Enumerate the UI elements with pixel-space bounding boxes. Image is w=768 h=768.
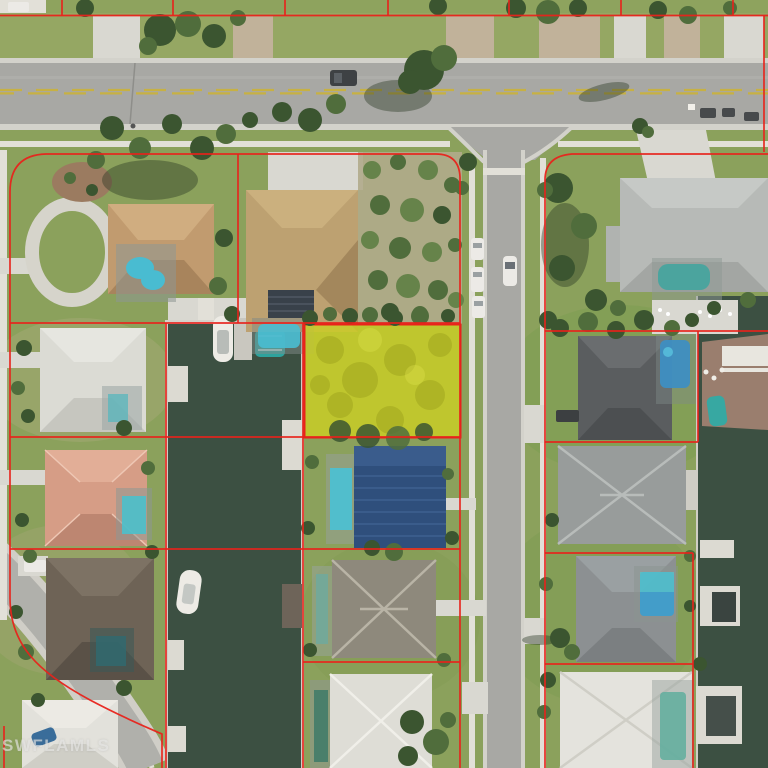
dock-west-3 [168, 726, 186, 752]
moving-car-street [503, 256, 517, 286]
dock-east-canal-3 [696, 686, 742, 744]
canal-west [165, 298, 304, 768]
house-white-roof-west [40, 328, 146, 432]
dock-west-1 [168, 366, 188, 402]
parked-cars-street [471, 238, 485, 318]
aerial-map: SWFLAMLS [0, 0, 768, 768]
house-gray-brown-roof [312, 560, 436, 658]
subject-parcel-highlight [305, 325, 461, 438]
house-gray-x-ridge [558, 446, 698, 544]
aerial-photo [0, 0, 768, 768]
house-blue-metal-roof [326, 446, 446, 548]
house-corner-white-roof [22, 700, 118, 768]
watermark: SWFLAMLS [2, 736, 110, 756]
dock-east-2 [282, 584, 302, 628]
dock-east-1 [282, 420, 302, 470]
house-gray-covered-pool [576, 556, 678, 662]
dock-east-canal-2 [700, 586, 740, 626]
dock-east-canal-1 [700, 540, 734, 558]
house-salmon-roof [45, 450, 152, 546]
house-se-white-roof [560, 672, 694, 768]
scrub-area [358, 152, 464, 325]
canal-east [696, 296, 768, 768]
dock-west-2 [168, 640, 184, 670]
